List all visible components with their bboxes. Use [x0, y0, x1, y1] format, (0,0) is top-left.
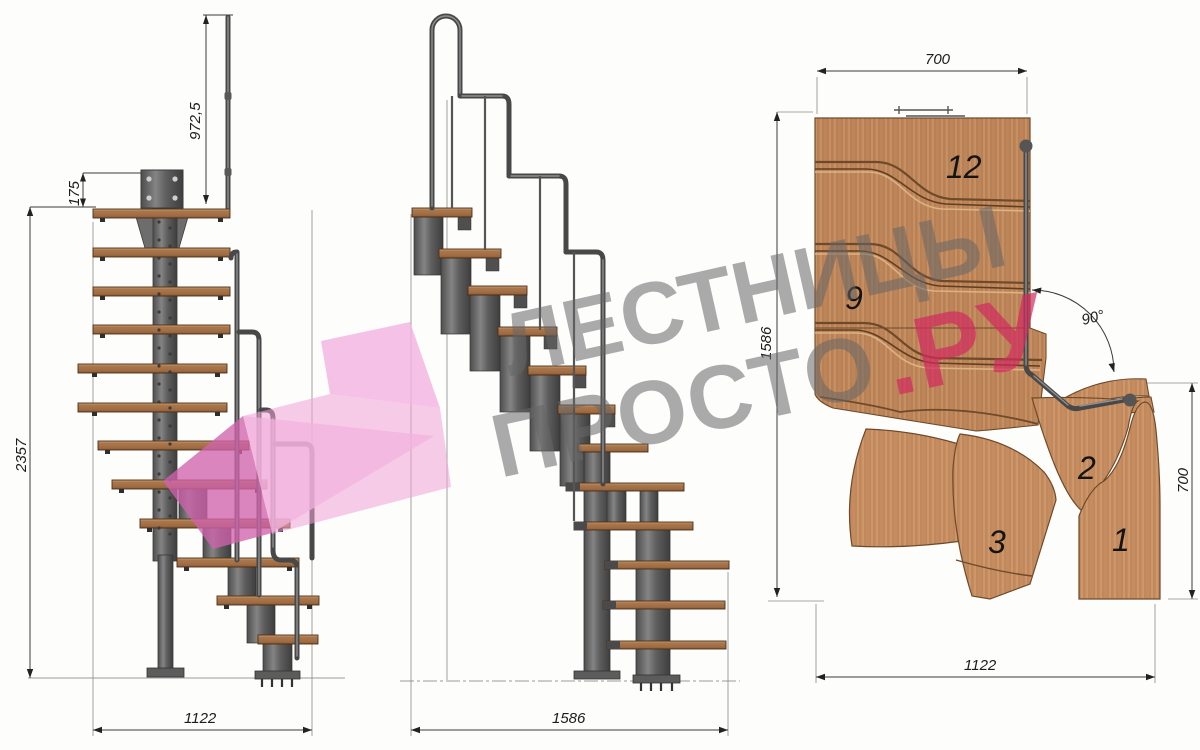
svg-text:2: 2 [1077, 450, 1096, 486]
svg-text:700: 700 [1175, 467, 1192, 493]
svg-text:972,5: 972,5 [187, 102, 204, 140]
svg-text:1122: 1122 [964, 657, 997, 674]
svg-text:12: 12 [946, 149, 982, 185]
svg-text:1586: 1586 [552, 710, 586, 727]
svg-text:3: 3 [988, 524, 1006, 560]
svg-text:1: 1 [1112, 522, 1130, 558]
svg-text:2357: 2357 [13, 438, 30, 473]
svg-text:1122: 1122 [184, 710, 217, 727]
svg-text:175: 175 [66, 180, 83, 206]
svg-text:700: 700 [925, 51, 951, 68]
